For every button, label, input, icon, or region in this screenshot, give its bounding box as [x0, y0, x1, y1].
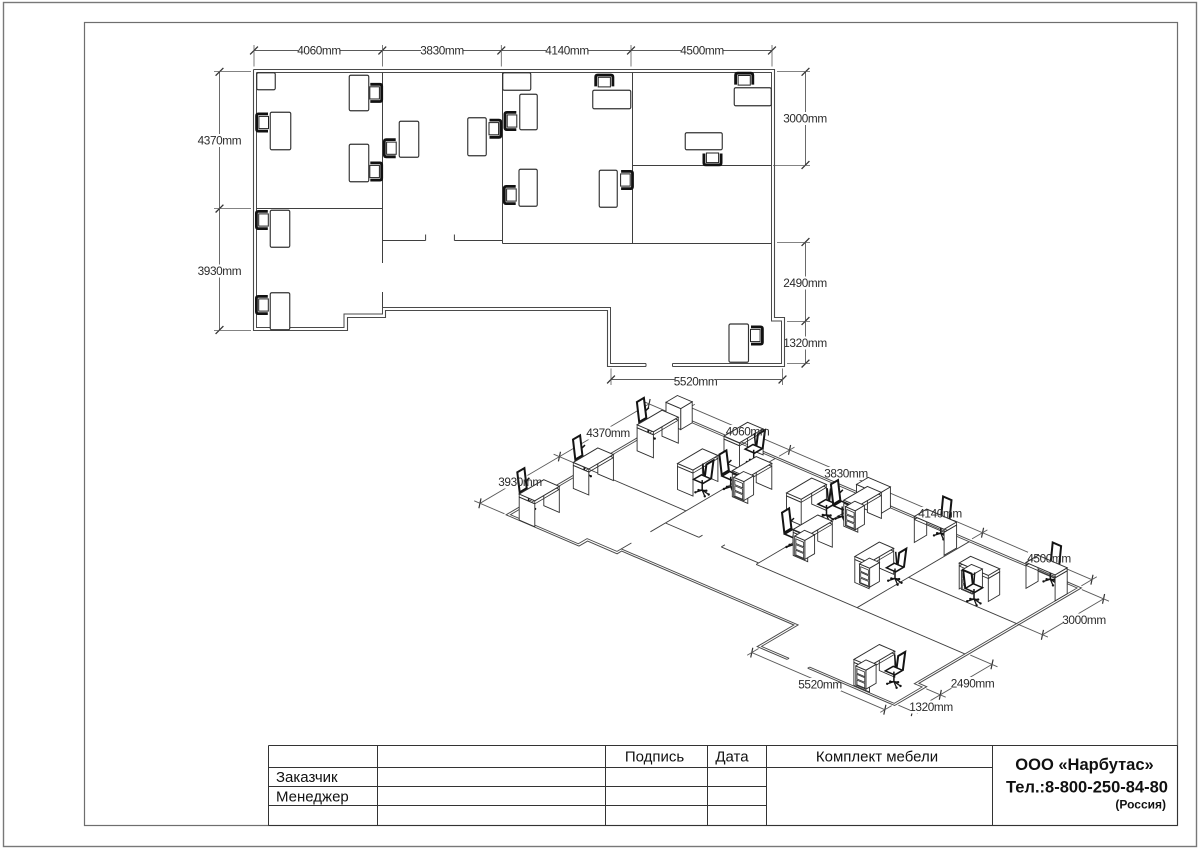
- svg-text:3830mm: 3830mm: [420, 44, 464, 58]
- svg-text:ООО «Нарбутас»: ООО «Нарбутас»: [1015, 756, 1153, 774]
- svg-text:4370mm: 4370mm: [198, 134, 242, 148]
- svg-text:Заказчик: Заказчик: [276, 769, 338, 786]
- svg-text:Подпись: Подпись: [625, 749, 685, 766]
- svg-text:4500mm: 4500mm: [1027, 552, 1071, 566]
- svg-text:3830mm: 3830mm: [824, 467, 868, 481]
- svg-text:Менеджер: Менеджер: [276, 789, 349, 806]
- svg-text:5520mm: 5520mm: [798, 678, 842, 692]
- svg-text:(Россия): (Россия): [1115, 798, 1166, 812]
- svg-text:3930mm: 3930mm: [498, 475, 542, 489]
- svg-text:1320mm: 1320mm: [909, 700, 953, 714]
- svg-text:4060mm: 4060mm: [297, 44, 341, 58]
- svg-text:Тел.:8-800-250-84-80: Тел.:8-800-250-84-80: [1006, 779, 1168, 797]
- svg-text:4370mm: 4370mm: [586, 426, 630, 440]
- svg-text:Дата: Дата: [715, 749, 749, 766]
- svg-text:3000mm: 3000mm: [1062, 613, 1106, 627]
- svg-text:2490mm: 2490mm: [951, 677, 995, 691]
- svg-text:4140mm: 4140mm: [545, 44, 589, 58]
- svg-text:3930mm: 3930mm: [198, 264, 242, 278]
- svg-text:4140mm: 4140mm: [918, 507, 962, 521]
- svg-text:5520mm: 5520mm: [674, 375, 718, 389]
- svg-text:4060mm: 4060mm: [726, 425, 770, 439]
- svg-text:2490mm: 2490mm: [783, 276, 827, 290]
- svg-text:3000mm: 3000mm: [783, 112, 827, 126]
- svg-text:1320mm: 1320mm: [783, 336, 827, 350]
- svg-text:4500mm: 4500mm: [680, 44, 724, 58]
- svg-text:Комплект мебели: Комплект мебели: [816, 749, 938, 766]
